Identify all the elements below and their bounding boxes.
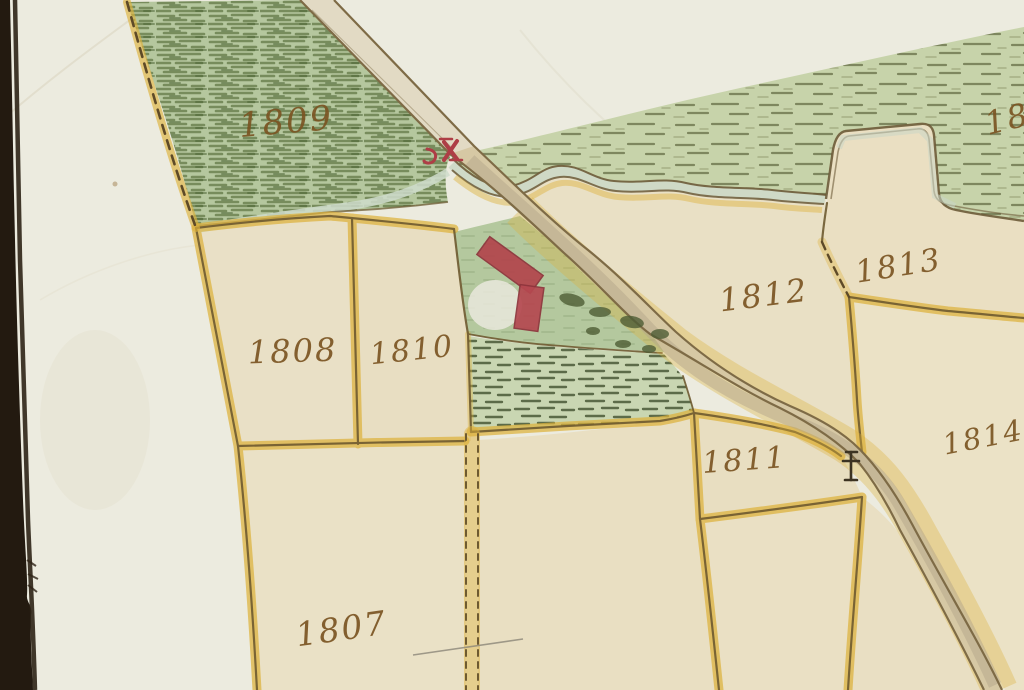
yard-patch [468, 280, 522, 330]
parcel-label-1809: 1809 [237, 98, 335, 146]
building [514, 285, 544, 332]
parcel-area-1810 [352, 218, 471, 444]
parcel-label-1811: 1811 [701, 440, 788, 481]
parcel-area-middle [478, 413, 719, 690]
parcel-label-1808: 1808 [247, 330, 338, 371]
photo-of-map: 1807 1808 1809 1810 1811 1812 1813 1814 … [0, 0, 1024, 690]
map-photo: 1807 1808 1809 1810 1811 1812 1813 1814 … [0, 0, 1024, 690]
parcel-area-below-1811 [700, 497, 862, 690]
